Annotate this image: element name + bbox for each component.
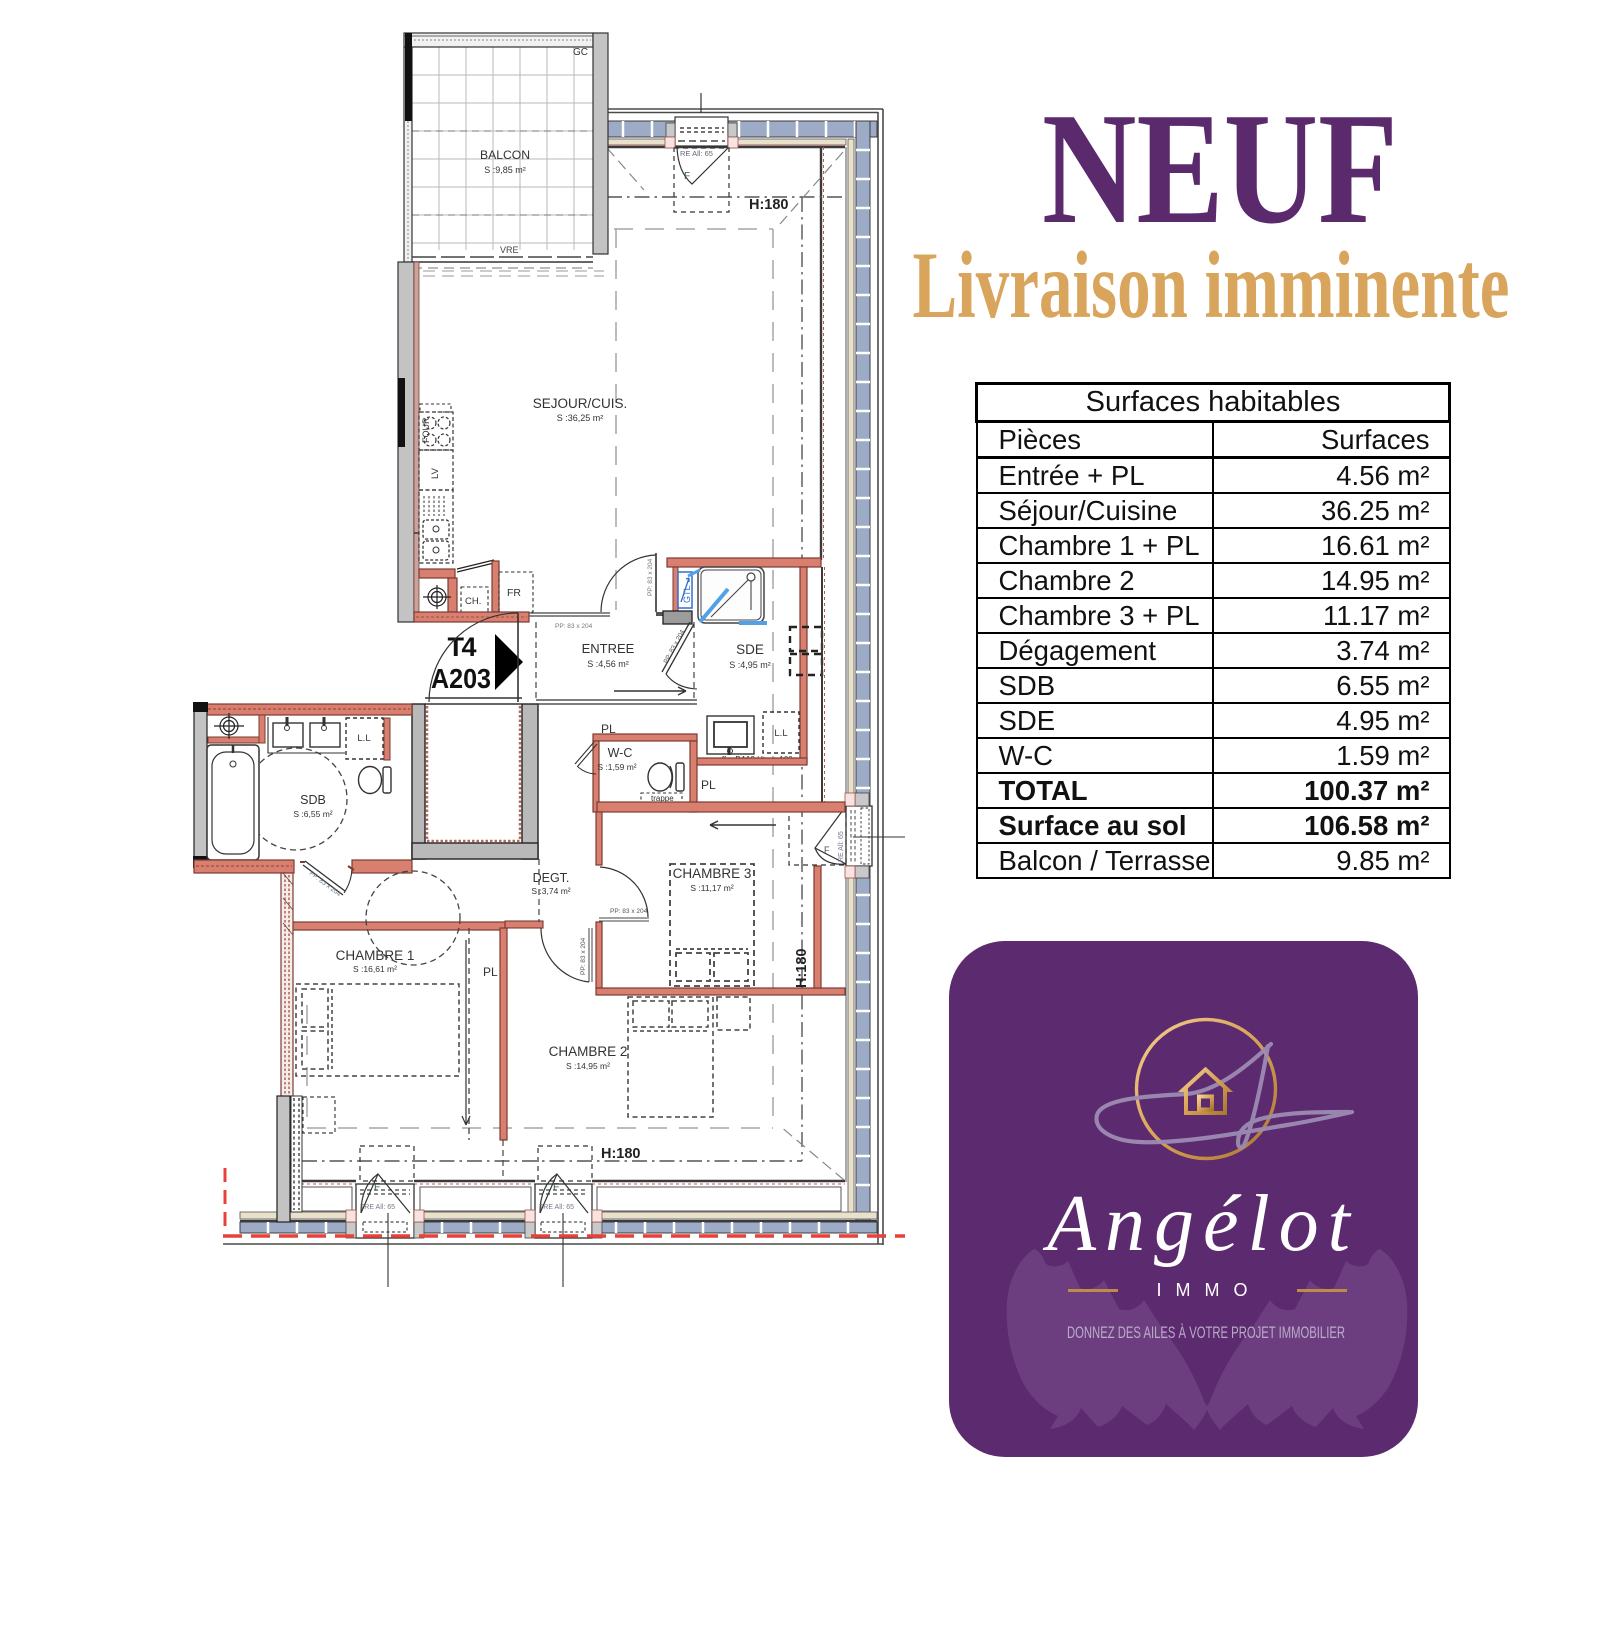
svg-text:Angélot: Angélot bbox=[1042, 1180, 1359, 1268]
svg-text:S :14,95 m²: S :14,95 m² bbox=[566, 1061, 610, 1071]
svg-text:DONNEZ DES AILES À VOTRE PROJE: DONNEZ DES AILES À VOTRE PROJET IMMOBILI… bbox=[1067, 1323, 1345, 1342]
svg-text:CHAMBRE 3: CHAMBRE 3 bbox=[673, 866, 752, 881]
svg-text:IMMO: IMMO bbox=[1157, 1280, 1262, 1300]
svg-text:S :4,95 m²: S :4,95 m² bbox=[729, 660, 771, 670]
svg-text:NEUF: NEUF bbox=[1042, 79, 1398, 257]
svg-text:L.L: L.L bbox=[774, 728, 787, 739]
svg-text:ENTREE: ENTREE bbox=[582, 641, 635, 656]
svg-text:H:180: H:180 bbox=[794, 949, 810, 989]
svg-text:S :1,59 m²: S :1,59 m² bbox=[597, 762, 636, 772]
svg-text:SDB: SDB bbox=[300, 793, 326, 807]
svg-text:BALCON: BALCON bbox=[480, 148, 530, 162]
svg-text:S :16,61 m²: S :16,61 m² bbox=[353, 964, 397, 974]
svg-text:F: F bbox=[374, 1182, 380, 1193]
svg-text:S :11,17 m²: S :11,17 m² bbox=[690, 883, 733, 893]
svg-text:CH.: CH. bbox=[465, 596, 481, 607]
svg-text:T4: T4 bbox=[448, 632, 477, 662]
svg-text:F: F bbox=[553, 1182, 559, 1193]
svg-text:S :36,25 m²: S :36,25 m² bbox=[557, 413, 604, 423]
svg-text:LV: LV bbox=[430, 467, 441, 479]
svg-text:A203: A203 bbox=[431, 663, 491, 694]
svg-text:S :3,74 m²: S :3,74 m² bbox=[531, 886, 570, 896]
svg-text:PL: PL bbox=[701, 778, 716, 792]
svg-text:DEGT.: DEGT. bbox=[533, 871, 570, 885]
svg-text:W-C: W-C bbox=[608, 746, 633, 760]
svg-text:PL: PL bbox=[483, 965, 498, 979]
svg-text:TRE All: 65: TRE All: 65 bbox=[360, 1204, 395, 1211]
svg-text:F: F bbox=[824, 845, 830, 855]
svg-text:VRE: VRE bbox=[500, 245, 519, 255]
svg-text:PP: 83 x 204: PP: 83 x 204 bbox=[555, 623, 593, 630]
svg-text:SEJOUR/CUIS.: SEJOUR/CUIS. bbox=[533, 396, 628, 411]
svg-text:H:180: H:180 bbox=[601, 1146, 641, 1162]
svg-text:CHAMBRE 1: CHAMBRE 1 bbox=[336, 948, 415, 963]
svg-text:PP: 83 x 204: PP: 83 x 204 bbox=[580, 937, 587, 975]
svg-text:FR: FR bbox=[507, 587, 521, 599]
svg-text:S :6,55 m²: S :6,55 m² bbox=[293, 809, 332, 819]
svg-text:PP: 83 x 204: PP: 83 x 204 bbox=[647, 558, 654, 596]
svg-text:GC: GC bbox=[573, 47, 588, 58]
svg-text:H:180: H:180 bbox=[749, 197, 789, 213]
svg-text:S :9,85 m²: S :9,85 m² bbox=[484, 165, 526, 175]
svg-text:L.L: L.L bbox=[357, 733, 370, 744]
svg-text:F: F bbox=[684, 171, 690, 182]
svg-text:GTL: GTL bbox=[682, 585, 692, 603]
svg-text:S :4,56 m²: S :4,56 m² bbox=[587, 659, 629, 669]
svg-text:PP: 83 x 204: PP: 83 x 204 bbox=[610, 908, 648, 915]
svg-text:TRE All: 65: TRE All: 65 bbox=[539, 1204, 574, 1211]
svg-text:SDE: SDE bbox=[736, 642, 764, 657]
svg-text:FOUR: FOUR bbox=[421, 417, 431, 443]
svg-text:CHAMBRE 2: CHAMBRE 2 bbox=[549, 1044, 628, 1059]
svg-text:RE All: 65: RE All: 65 bbox=[838, 831, 845, 862]
svg-text:Livraison imminente: Livraison imminente bbox=[913, 232, 1510, 338]
svg-text:RE All: 65: RE All: 65 bbox=[680, 149, 713, 158]
